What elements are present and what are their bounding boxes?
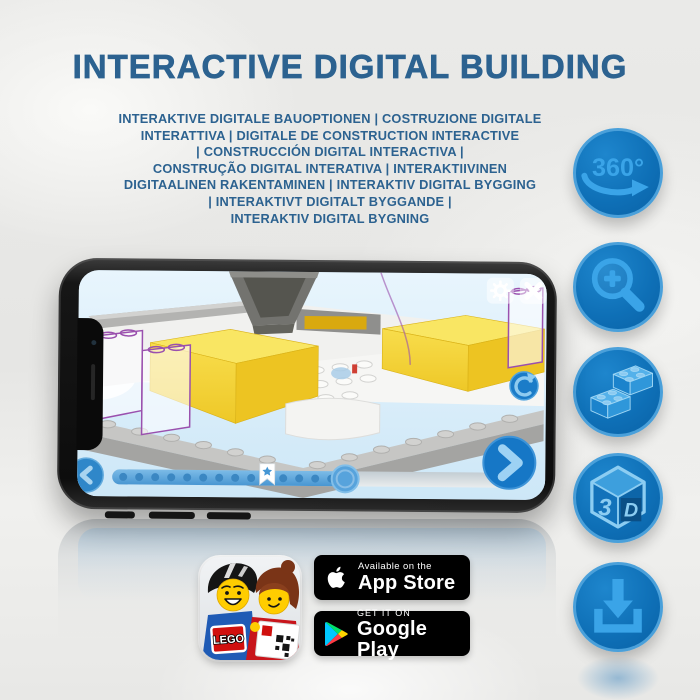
subtitle-line: | INTERAKTIVT DIGITALT BYGGANDE |	[80, 194, 580, 211]
feature-badge-zoom	[573, 242, 663, 332]
lego-builder-scene	[77, 270, 547, 500]
badge-top-line: GET IT ON	[357, 607, 470, 619]
badge-store-name: Google Play	[357, 619, 470, 661]
subtitle-line: CONSTRUÇÃO DIGITAL INTERATIVA | INTERAKT…	[80, 161, 580, 178]
google-play-badge[interactable]: GET IT ON Google Play	[314, 611, 470, 656]
feature-badge-download	[573, 562, 663, 652]
app-store-badge[interactable]: Available on the App Store	[314, 555, 470, 600]
page-background: INTERACTIVE DIGITAL BUILDING INTERAKTIVE…	[0, 0, 700, 700]
subtitle-line: | CONSTRUCCIÓN DIGITAL INTERACTIVA |	[80, 144, 580, 161]
svg-text:D: D	[624, 500, 638, 522]
phone-side-button	[105, 511, 135, 518]
download-icon	[576, 565, 660, 649]
page-title: INTERACTIVE DIGITAL BUILDING	[0, 48, 700, 86]
camera-icon	[91, 340, 96, 345]
slider-fill	[112, 469, 345, 486]
badge-store-name: App Store	[358, 573, 455, 594]
phone-side-button	[207, 512, 251, 519]
download-badge-reflection	[577, 656, 659, 700]
subtitle-line: DIGITAALINEN RAKENTAMINEN | INTERAKTIV D…	[80, 177, 580, 194]
app-icon[interactable]: LEGO	[200, 557, 300, 660]
svg-text:3: 3	[598, 495, 612, 522]
close-button[interactable]	[520, 278, 547, 304]
svg-text:360°: 360°	[592, 154, 644, 182]
feature-badge-360: 360°	[573, 128, 663, 218]
lego-bricks-icon	[576, 350, 660, 434]
phone-side-button	[149, 512, 195, 519]
qr-card	[255, 621, 299, 660]
feature-badge-3d: 3 D	[573, 453, 663, 543]
subtitle: INTERAKTIVE DIGITALE BAUOPTIONEN | COSTR…	[80, 111, 580, 227]
play-store-icon	[325, 621, 348, 647]
next-step-button[interactable]	[483, 437, 535, 489]
zoom-in-icon	[576, 245, 660, 329]
360-rotation-icon: 360°	[576, 131, 660, 215]
phone-screen	[77, 270, 547, 500]
subtitle-line: INTERATTIVA | DIGITALE DE CONSTRUCTION I…	[80, 128, 580, 145]
subtitle-line: INTERAKTIVE DIGITALE BAUOPTIONEN | COSTR…	[80, 111, 580, 128]
apple-icon	[325, 564, 349, 591]
lego-app-icon-art: LEGO	[200, 557, 300, 660]
lego-logo: LEGO	[211, 625, 246, 653]
feature-badge-bricks	[573, 347, 663, 437]
settings-button[interactable]	[487, 278, 514, 304]
speaker-icon	[91, 364, 95, 400]
subtitle-line: INTERAKTIV DIGITAL BYGNING	[80, 211, 580, 228]
refresh-button[interactable]	[510, 372, 538, 400]
phone-reflection	[58, 519, 556, 669]
3d-cube-icon: 3 D	[576, 456, 660, 540]
slider-thumb[interactable]	[332, 465, 359, 492]
phone-mockup	[57, 258, 557, 513]
phone-notch	[76, 317, 103, 449]
svg-text:LEGO: LEGO	[213, 633, 245, 647]
